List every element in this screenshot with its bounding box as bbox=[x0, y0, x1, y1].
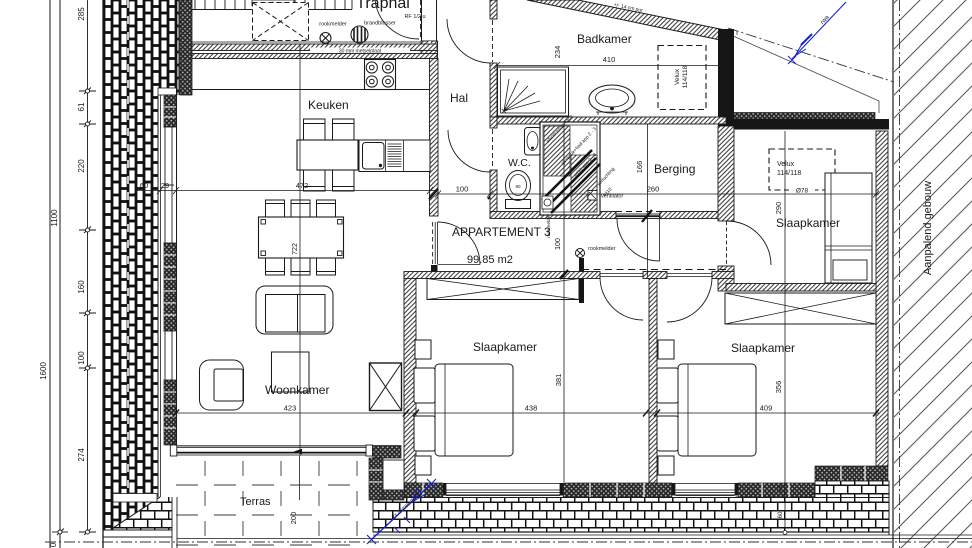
svg-text:Berging: Berging bbox=[654, 162, 695, 176]
svg-text:Terras: Terras bbox=[240, 496, 271, 508]
svg-text:99.85 m2: 99.85 m2 bbox=[467, 254, 513, 266]
svg-text:80: 80 bbox=[515, 184, 521, 189]
svg-text:100: 100 bbox=[456, 185, 469, 194]
svg-text:200: 200 bbox=[289, 512, 298, 525]
svg-text:1600: 1600 bbox=[39, 362, 48, 380]
svg-text:472: 472 bbox=[296, 181, 309, 190]
svg-text:W.C.: W.C. bbox=[508, 157, 531, 169]
svg-text:438: 438 bbox=[525, 404, 538, 413]
svg-text:1100: 1100 bbox=[50, 209, 59, 227]
svg-text:290: 290 bbox=[774, 202, 783, 215]
svg-text:166: 166 bbox=[635, 161, 644, 174]
svg-text:RF 1/2 u: RF 1/2 u bbox=[404, 14, 425, 20]
svg-text:Slaapkamer: Slaapkamer bbox=[473, 340, 537, 354]
svg-text:100: 100 bbox=[77, 351, 86, 365]
svg-text:Velux: Velux bbox=[777, 161, 795, 168]
svg-text:29: 29 bbox=[161, 181, 169, 190]
svg-text:rookmelder: rookmelder bbox=[588, 246, 616, 252]
svg-text:234: 234 bbox=[553, 46, 562, 59]
svg-text:Ø78: Ø78 bbox=[796, 188, 809, 195]
svg-text:Aanpalend gebouw: Aanpalend gebouw bbox=[922, 181, 934, 275]
svg-text:160: 160 bbox=[77, 280, 86, 294]
svg-text:brandblusser: brandblusser bbox=[364, 21, 396, 27]
svg-text:100: 100 bbox=[555, 238, 562, 250]
svg-text:114/118: 114/118 bbox=[682, 65, 689, 88]
svg-text:285: 285 bbox=[77, 7, 86, 21]
svg-text:60: 60 bbox=[140, 181, 148, 190]
svg-text:60: 60 bbox=[778, 511, 784, 518]
svg-text:114/118: 114/118 bbox=[777, 170, 801, 177]
svg-text:Woonkamer: Woonkamer bbox=[265, 383, 329, 397]
svg-text:rookmelder: rookmelder bbox=[319, 22, 347, 28]
svg-text:220: 220 bbox=[77, 159, 86, 173]
svg-text:30 mm metselplaat: 30 mm metselplaat bbox=[339, 49, 382, 55]
svg-text:APPARTEMENT 3: APPARTEMENT 3 bbox=[452, 225, 551, 239]
svg-text:43: 43 bbox=[778, 485, 784, 492]
svg-text:356: 356 bbox=[774, 381, 783, 394]
svg-text:722: 722 bbox=[292, 243, 299, 255]
svg-text:Keuken: Keuken bbox=[308, 98, 349, 112]
svg-text:Slaapkamer: Slaapkamer bbox=[776, 216, 840, 230]
svg-text:0: 0 bbox=[49, 542, 58, 547]
svg-text:260: 260 bbox=[647, 185, 660, 194]
svg-text:Hal: Hal bbox=[450, 91, 468, 105]
svg-text:409: 409 bbox=[760, 404, 773, 413]
svg-text:Slaapkamer: Slaapkamer bbox=[731, 341, 795, 355]
svg-text:Badkamer: Badkamer bbox=[577, 32, 632, 46]
svg-text:Traphal: Traphal bbox=[356, 0, 410, 12]
svg-text:61: 61 bbox=[77, 102, 86, 111]
svg-text:274: 274 bbox=[77, 448, 86, 462]
svg-text:410: 410 bbox=[603, 55, 616, 64]
svg-text:Velux: Velux bbox=[674, 68, 681, 85]
svg-text:381: 381 bbox=[554, 374, 563, 387]
svg-text:423: 423 bbox=[284, 404, 297, 413]
